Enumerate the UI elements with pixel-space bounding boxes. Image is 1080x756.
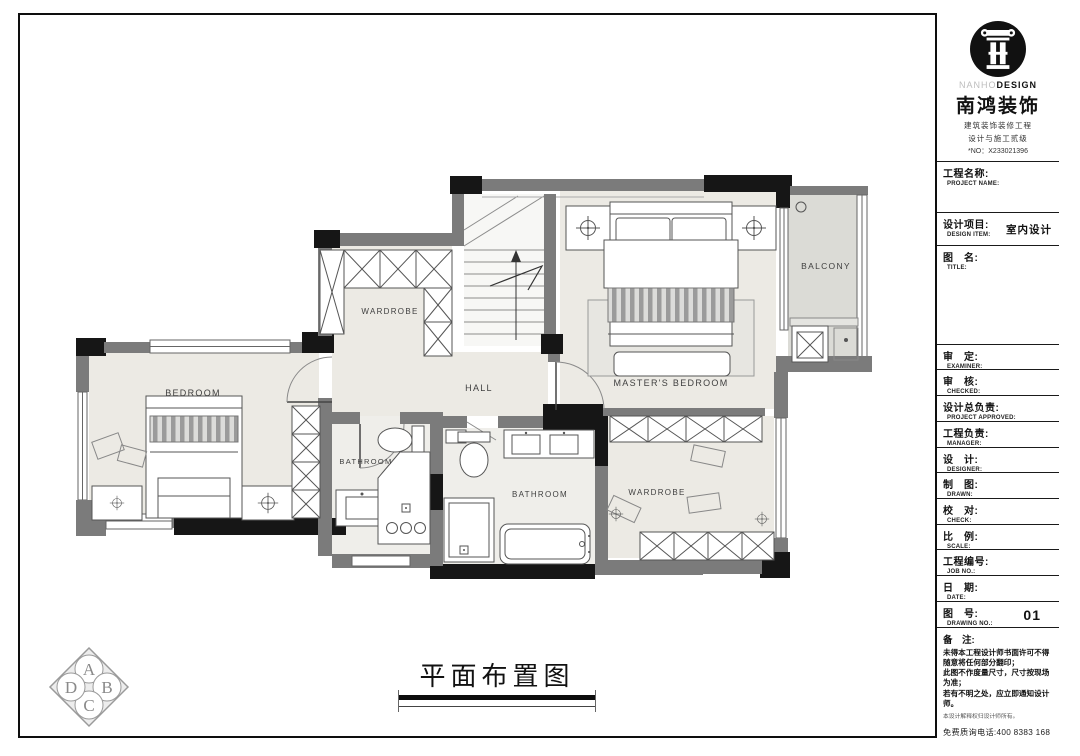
label-hall: HALL [465,383,493,393]
compass-letter-a: A [83,660,96,679]
cert-line-1: 建筑装饰装修工程 [964,120,1032,131]
label-bedroom: BEDROOM [165,388,221,398]
label-bathroom-small: BATHROOM [339,457,392,466]
brand-en: NANHODESIGN [959,80,1037,90]
compass-icon: A B C D [50,648,128,726]
title-tick-left [398,690,399,712]
label-wardrobe-right: WARDROBE [628,488,685,497]
compass-letter-d: D [65,678,77,697]
field-scale: 比 例: SCALE: [937,524,1059,550]
company-logo: NANHODESIGN 南鸿装饰 建筑装饰装修工程 设计与施工贰级 *NO：X2… [937,13,1059,161]
cert-no: *NO：X233021396 [968,146,1028,156]
field-date: 日 期: DATE: [937,575,1059,601]
drawing-no-value: 01 [1023,607,1041,623]
title-underline-thick [399,695,595,700]
title-tick-right [595,690,596,712]
field-check: 校 对: CHECK: [937,498,1059,524]
compass-letter-b: B [101,678,112,697]
field-examiner: 审 定: EXAMINER: [937,344,1059,370]
compass-letter-c: C [83,696,94,715]
field-drawing-no: 图 号: DRAWING NO.: 01 [937,601,1059,627]
label-master-bedroom: MASTER'S BEDROOM [613,378,728,388]
brand-cn: 南鸿装饰 [956,91,1040,118]
label-wardrobe-top: WARDROBE [361,307,418,316]
floor-plan: BEDROOM WARDROBE HALL MASTER'S BEDROOM B… [0,0,1080,756]
field-drawn: 制 图: DRAWN: [937,472,1059,498]
cert-line-2: 设计与施工贰级 [968,133,1028,144]
field-job-no: 工程编号: JOB NO.: [937,549,1059,575]
title-block: NANHODESIGN 南鸿装饰 建筑装饰装修工程 设计与施工贰级 *NO：X2… [935,13,1059,738]
column-logo-icon [970,21,1026,77]
field-checked: 审 核: CHECKED: [937,369,1059,395]
drawing-sheet: BEDROOM WARDROBE HALL MASTER'S BEDROOM B… [0,0,1080,756]
field-manager: 工程负责: MANAGER: [937,421,1059,447]
field-project-approved: 设计总负责: PROJECT APPROVED: [937,395,1059,421]
notes-section: 备 注: 未得本工程设计师书面许可不得随意将任何部分翻印； 此图不作度量尺寸，尺… [937,627,1059,739]
design-item-value: 室内设计 [1006,222,1052,237]
field-design-item: 设计项目: DESIGN ITEM: 室内设计 [937,212,1059,245]
drawing-title: 平面布置图 [397,656,597,693]
hotline: 免费质询电话:400 8383 168 [943,726,1054,738]
label-bathroom-large: BATHROOM [512,490,568,499]
field-project-name: 工程名称: PROJECT NAME: [937,161,1059,212]
field-title: 图 名: TITLE: [937,245,1059,344]
title-underline-thin [399,706,595,707]
label-balcony: BALCONY [801,261,851,271]
field-designer: 设 计: DESIGNER: [937,447,1059,473]
